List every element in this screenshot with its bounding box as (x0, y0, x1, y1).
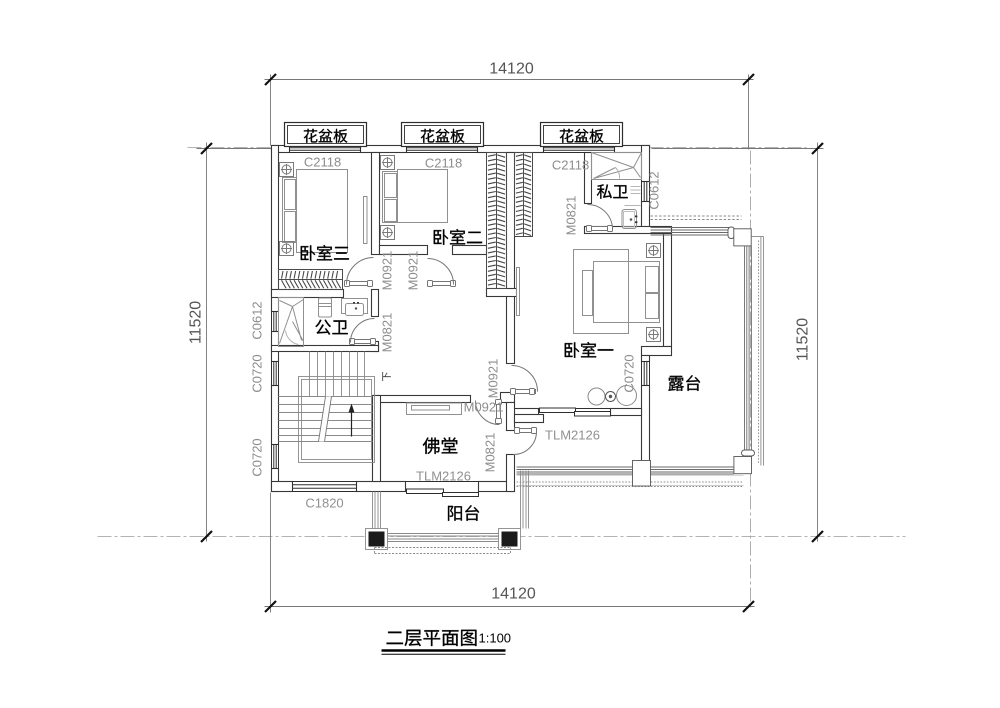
svg-text:C1820: C1820 (305, 496, 343, 511)
svg-text:C2118: C2118 (552, 158, 589, 173)
svg-text:M0921: M0921 (464, 400, 504, 415)
svg-text:C0612: C0612 (250, 301, 265, 339)
svg-text:C0720: C0720 (622, 354, 637, 392)
svg-text:C0720: C0720 (250, 438, 265, 476)
svg-text:TLM2126: TLM2126 (545, 428, 600, 443)
svg-text:11520: 11520 (795, 318, 812, 361)
svg-text:M0821: M0821 (483, 433, 498, 473)
svg-text:M0921: M0921 (406, 251, 421, 291)
svg-text:M0921: M0921 (380, 251, 395, 291)
svg-text:C2118: C2118 (304, 155, 341, 170)
svg-text:1:100: 1:100 (479, 631, 512, 646)
svg-text:14120: 14120 (491, 586, 536, 603)
svg-text:M0821: M0821 (380, 313, 395, 353)
svg-text:14120: 14120 (489, 61, 534, 78)
svg-text:C2118: C2118 (425, 156, 462, 171)
svg-text:M0921: M0921 (486, 359, 501, 399)
svg-text:M0821: M0821 (564, 196, 579, 236)
svg-text:C0612: C0612 (647, 171, 662, 209)
svg-text:TLM2126: TLM2126 (416, 469, 471, 484)
svg-text:C0720: C0720 (250, 354, 265, 392)
svg-text:11520: 11520 (188, 301, 205, 344)
